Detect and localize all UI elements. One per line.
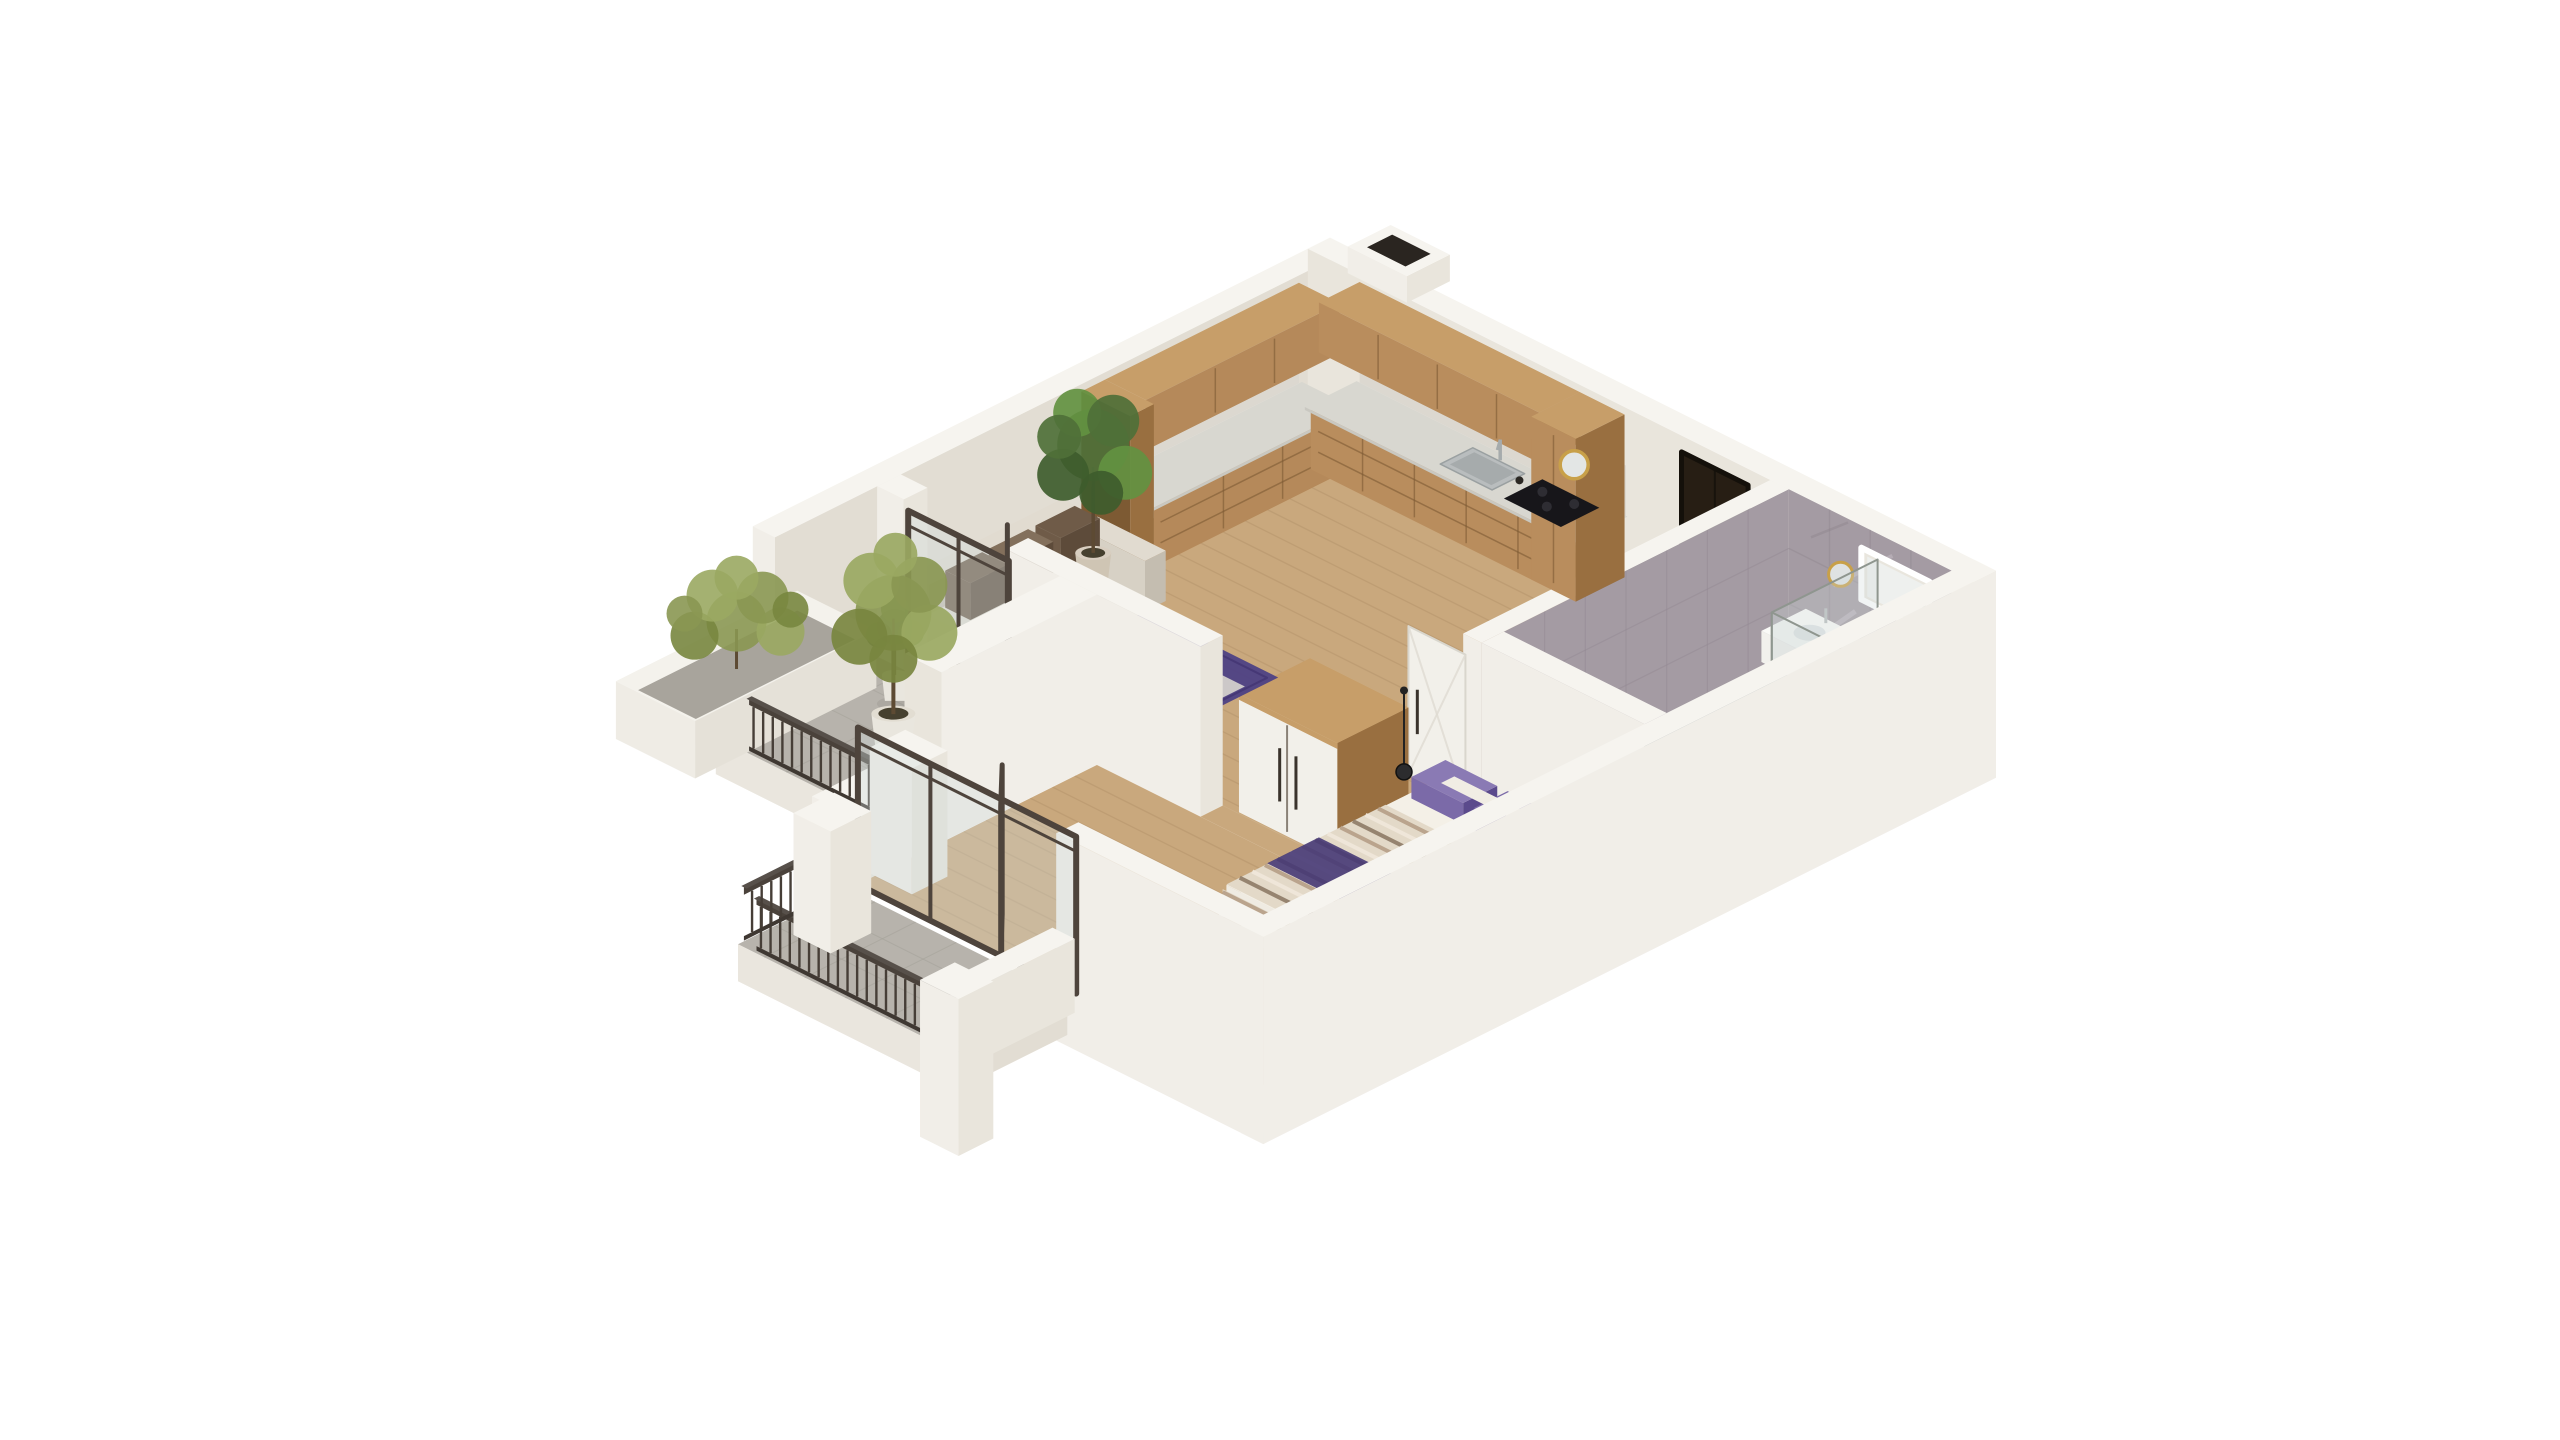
bedroom-balcony-pillar-left xyxy=(794,793,872,954)
front-corner-pillar xyxy=(920,962,993,1156)
floorplan-canvas xyxy=(0,0,2560,1440)
floorplan-render xyxy=(0,0,2560,1440)
